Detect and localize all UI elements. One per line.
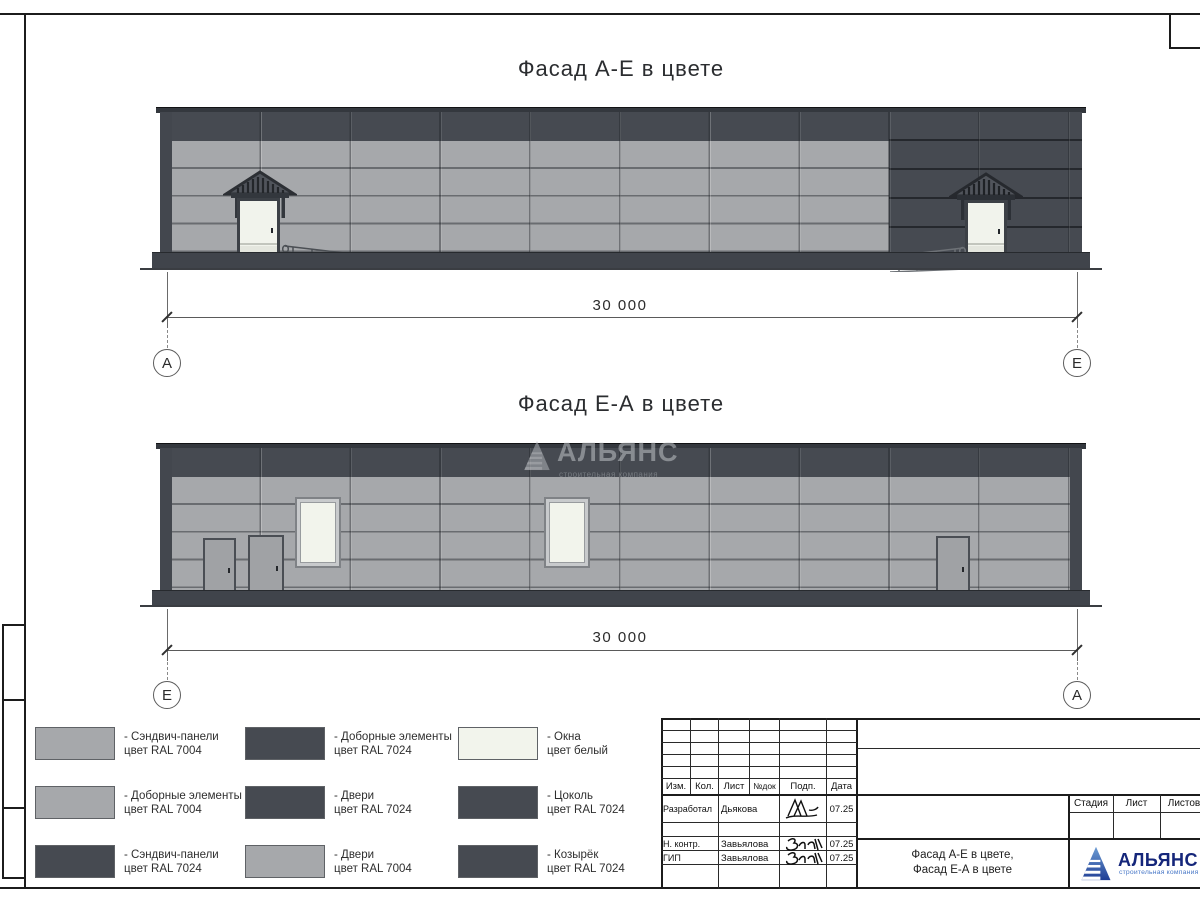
frame-corner-box	[1169, 13, 1200, 49]
corner-pilaster-left	[160, 112, 172, 252]
plinth-ral7024	[152, 590, 1090, 606]
extension-line	[1077, 609, 1078, 661]
legend-color-note: цвет RAL 7004	[124, 803, 242, 817]
axis-letter: Е	[162, 687, 172, 704]
tb-sheets-header: Листов	[1161, 798, 1200, 809]
legend-item: - Цокольцвет RAL 7024	[458, 786, 625, 819]
frame-bottom-line	[0, 887, 1200, 889]
door-handle	[228, 568, 230, 573]
door-handle	[276, 566, 278, 571]
signature	[785, 851, 823, 865]
frame-left-divider	[2, 624, 26, 626]
axis-dash-line	[1077, 330, 1078, 348]
legend-label: - Двери	[334, 789, 412, 803]
extension-line	[167, 609, 168, 661]
tb-role: Разработал	[663, 804, 717, 814]
frame-top-line	[0, 13, 1200, 15]
frame-left-divider	[2, 807, 26, 809]
dimension-value: 30 000	[470, 629, 770, 646]
axis-dash-line	[167, 662, 168, 680]
tb-header-izm: Изм.	[662, 781, 690, 792]
legend-swatch	[245, 786, 325, 819]
tb-header-ndok: №док	[750, 781, 779, 791]
legend-item: - Доборные элементыцвет RAL 7024	[245, 727, 452, 760]
door-handle	[962, 567, 964, 572]
axis-letter: А	[1072, 687, 1082, 704]
ground-line	[140, 605, 1102, 607]
axis-bubble-a: А	[153, 349, 181, 377]
tb-date: 07.25	[827, 853, 856, 864]
legend-color-note: цвет RAL 7024	[547, 862, 625, 876]
legend-label: - Цоколь	[547, 789, 625, 803]
axis-dash-line	[167, 330, 168, 348]
plinth-ral7024	[152, 252, 1090, 269]
dimension-value: 30 000	[470, 297, 770, 314]
axis-letter: Е	[1072, 355, 1082, 372]
frame-left-divider	[2, 699, 26, 701]
tb-doc-title: Фасад А-Е в цвете, Фасад Е-А в цвете	[857, 848, 1068, 878]
tb-header-podp: Подп.	[780, 781, 826, 792]
top-band-ral7024	[160, 448, 1082, 478]
legend-swatch	[35, 786, 115, 819]
window-glass	[300, 502, 336, 563]
legend-item: - Дверицвет RAL 7024	[245, 786, 412, 819]
legend-item: - Сэндвич-панелицвет RAL 7024	[35, 845, 219, 878]
company-logo-subtitle: строительная компания	[1119, 869, 1198, 876]
legend-color-note: цвет белый	[547, 744, 608, 758]
tb-date: 07.25	[827, 804, 856, 815]
dimension-line	[167, 650, 1078, 651]
legend-color-note: цвет RAL 7024	[124, 862, 219, 876]
legend-item: - Козырёкцвет RAL 7024	[458, 845, 625, 878]
tb-header-kol: Кол.	[691, 781, 718, 792]
legend-swatch	[245, 727, 325, 760]
tb-name: Дьякова	[721, 804, 777, 815]
door-handle	[998, 229, 1000, 234]
axis-bubble-e: Е	[153, 681, 181, 709]
tb-date: 07.25	[827, 839, 856, 850]
legend-swatch	[458, 786, 538, 819]
legend-color-note: цвет RAL 7024	[334, 803, 412, 817]
axis-dash-line	[1077, 662, 1078, 680]
legend-swatch	[458, 845, 538, 878]
legend-swatch	[458, 727, 538, 760]
signature	[783, 796, 823, 820]
legend-item: - Окнацвет белый	[458, 727, 608, 760]
legend-label: - Доборные элементы	[124, 789, 242, 803]
company-logo-title: АЛЬЯНС	[1118, 850, 1198, 871]
axis-letter: А	[162, 355, 172, 372]
legend-label: - Сэндвич-панели	[124, 730, 219, 744]
ground-line	[140, 268, 1102, 270]
tb-role: ГИП	[663, 853, 717, 863]
legend-label: - Сэндвич-панели	[124, 848, 219, 862]
doc-title-line1: Фасад А-Е в цвете,	[857, 848, 1068, 863]
legend-color-note: цвет RAL 7024	[547, 803, 625, 817]
door-glazing-divider	[240, 243, 277, 245]
legend-item: - Сэндвич-панелицвет RAL 7004	[35, 727, 219, 760]
legend-item: - Дверицвет RAL 7004	[245, 845, 412, 878]
legend-color-note: цвет RAL 7024	[334, 744, 452, 758]
legend-label: - Двери	[334, 848, 412, 862]
legend-color-note: цвет RAL 7004	[124, 744, 219, 758]
dimension-line	[167, 317, 1078, 318]
frame-left-divider	[2, 877, 26, 879]
extension-line	[167, 272, 168, 328]
legend-color-note: цвет RAL 7004	[334, 862, 412, 876]
tb-name: Завьялова	[721, 853, 777, 864]
legend-label: - Козырёк	[547, 848, 625, 862]
view1-title: Фасад А-Е в цвете	[160, 56, 1082, 82]
axis-bubble-a: А	[1063, 681, 1091, 709]
tb-header-data: Дата	[827, 781, 856, 792]
corner-pilaster-right	[1070, 448, 1082, 590]
tb-role: Н. контр.	[663, 839, 717, 849]
company-logo-pyramid-icon	[1080, 845, 1112, 882]
legend-swatch	[245, 845, 325, 878]
frame-left-outer-line	[2, 624, 4, 878]
extension-line	[1077, 272, 1078, 328]
window	[295, 497, 341, 568]
legend-item: - Доборные элементыцвет RAL 7004	[35, 786, 242, 819]
window-glass	[549, 502, 585, 563]
corner-pilaster-left	[160, 448, 172, 590]
door-glazing-divider	[968, 243, 1004, 245]
drawing-sheet: Фасад А-Е в цвете	[0, 0, 1200, 900]
legend-label: - Доборные элементы	[334, 730, 452, 744]
tb-header-list: Лист	[719, 781, 749, 792]
facade-a-e-drawing	[160, 107, 1082, 270]
axis-bubble-e: Е	[1063, 349, 1091, 377]
door-handle	[271, 228, 273, 233]
window	[544, 497, 590, 568]
view2-title: Фасад Е-А в цвете	[160, 391, 1082, 417]
doc-title-line2: Фасад Е-А в цвете	[857, 863, 1068, 878]
legend-swatch	[35, 845, 115, 878]
legend-swatch	[35, 727, 115, 760]
facade-e-a-drawing	[160, 443, 1082, 607]
tb-name: Завьялова	[721, 839, 777, 850]
frame-left-inner-line	[24, 13, 26, 889]
signature	[785, 837, 823, 851]
legend-label: - Окна	[547, 730, 608, 744]
tb-stage-header: Стадия	[1069, 798, 1113, 809]
tb-sheet-header: Лист	[1114, 798, 1159, 809]
